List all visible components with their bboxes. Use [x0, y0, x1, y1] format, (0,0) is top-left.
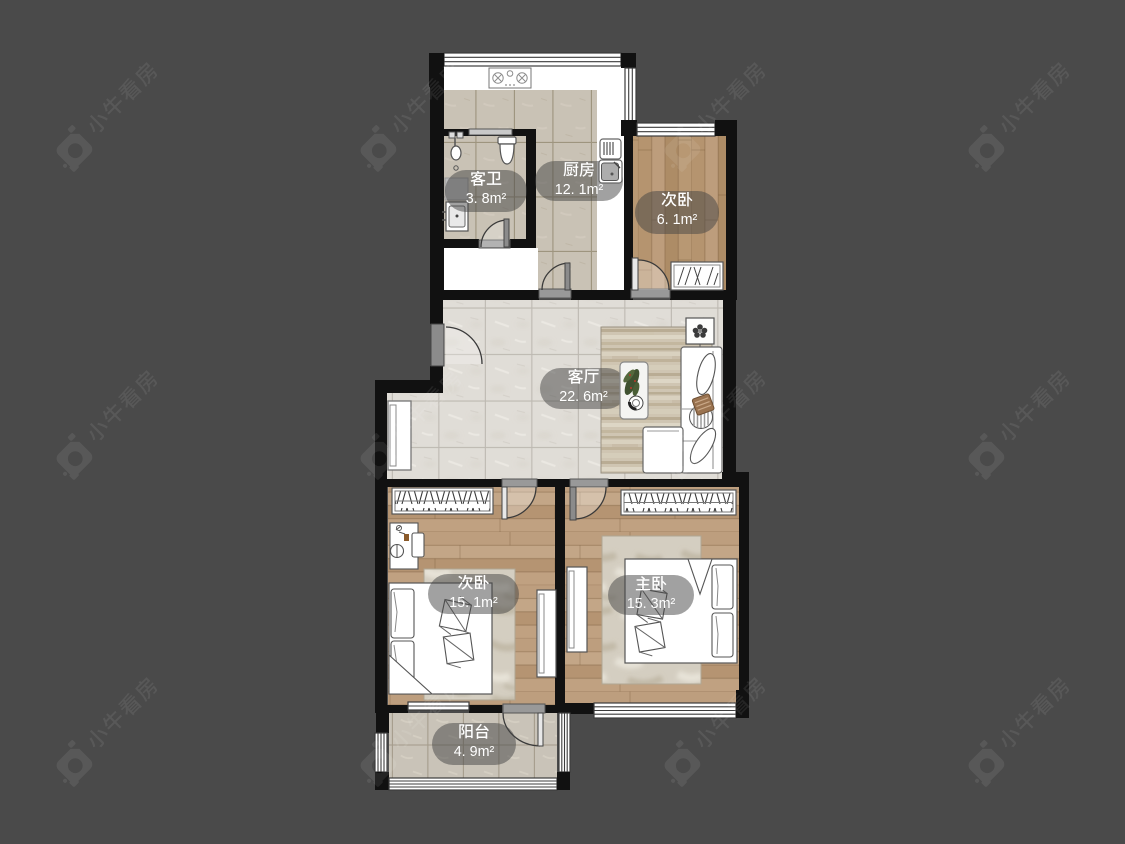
- svg-text:15. 1m²: 15. 1m²: [449, 595, 498, 611]
- svg-text:22. 6m²: 22. 6m²: [559, 389, 608, 405]
- svg-text:6. 1m²: 6. 1m²: [657, 212, 698, 228]
- svg-text:4. 9m²: 4. 9m²: [454, 744, 495, 760]
- svg-text:3. 8m²: 3. 8m²: [466, 191, 507, 207]
- svg-text:15. 3m²: 15. 3m²: [627, 596, 676, 612]
- svg-text:12. 1m²: 12. 1m²: [555, 182, 604, 198]
